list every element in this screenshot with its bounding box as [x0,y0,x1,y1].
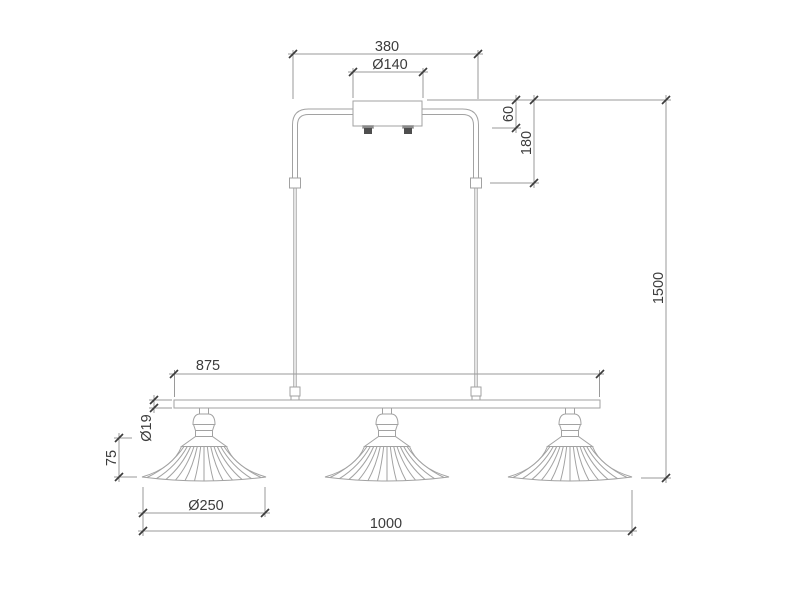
shade-right [508,408,632,481]
lamp-object [142,101,632,481]
drawing-canvas: 380 Ø140 60 180 [0,0,800,600]
page: { "figure": { "kind": "technical dimensi… [0,0,800,600]
right-arm [422,109,482,188]
right-arm-end-connector [471,178,482,188]
shade-middle [325,408,449,481]
canopy-mount-nub-right [403,126,414,135]
dim-overall-width-label: 1000 [370,516,402,532]
pendant-lamp-technical-drawing: 380 Ø140 60 180 [0,0,800,600]
dim-canopy-diameter: Ø140 [348,57,428,98]
dim-bar-tube-diameter: Ø19 [139,395,172,442]
horizontal-bar [174,400,600,408]
dim-suspension-drop-label: 180 [519,131,535,155]
wire-bar-connector-left [290,387,300,401]
dim-bar-span: 875 [169,358,604,397]
canopy [353,101,422,134]
wire-bar-connector-right [471,387,481,401]
dim-bar-span-label: 875 [196,358,220,374]
dim-overall-drop-label: 1500 [651,272,667,304]
dim-shade-height: 75 [104,433,137,482]
dim-canopy-height-label: 60 [501,106,517,122]
dim-canopy-span-label: 380 [375,39,399,55]
dim-shade-height-label: 75 [104,450,120,466]
suspension-wires [290,188,481,401]
dim-shade-diameter-label: Ø250 [188,498,223,514]
dim-canopy-height: 60 [492,95,521,133]
dim-overall-drop: 1500 [641,95,671,483]
dim-bar-tube-diameter-label: Ø19 [139,414,155,441]
dim-shade-diameter: Ø250 [138,487,270,536]
left-arm [290,109,354,188]
left-arm-end-connector [290,178,301,188]
dim-canopy-diameter-label: Ø140 [372,57,407,73]
shade-left [142,408,266,481]
canopy-mount-nub-left [363,126,374,135]
